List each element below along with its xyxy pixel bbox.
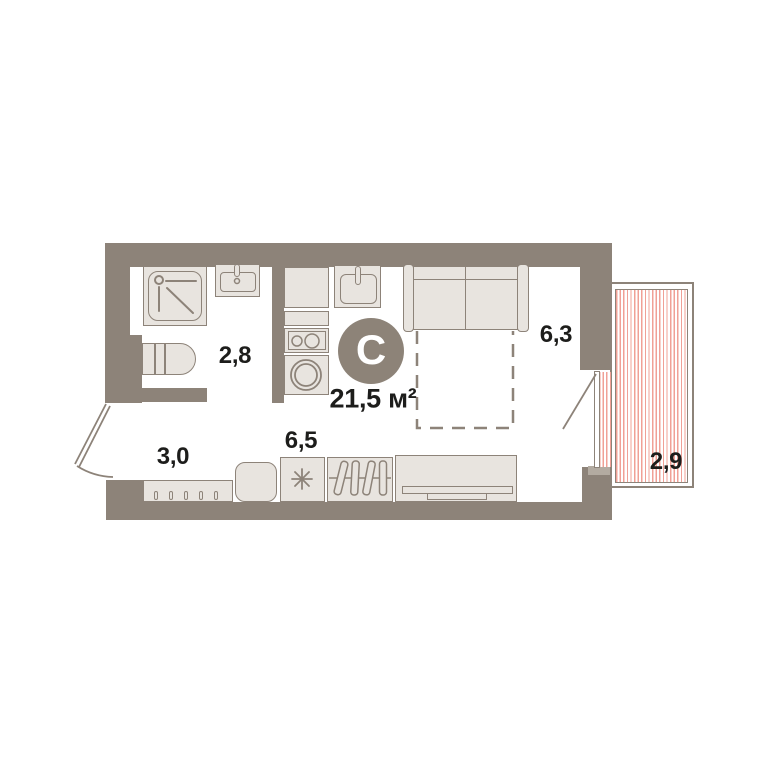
- kitchen-upper-cabinet: [284, 267, 329, 308]
- stool: [235, 462, 277, 502]
- sofa-back-right: [465, 266, 518, 280]
- kitchen-sink-faucet: [355, 266, 361, 285]
- room-label-living: 6,3: [540, 321, 572, 349]
- kitchen-counter-segment: [284, 311, 329, 326]
- toilet-tank-line-2: [164, 344, 166, 374]
- shower-basin: [148, 271, 202, 321]
- wardrobe-hook-5: [214, 491, 218, 500]
- wardrobe-hook-2: [169, 491, 173, 500]
- dish-cabinet: [327, 457, 393, 502]
- fridge: [280, 457, 325, 502]
- tv-screen: [402, 486, 513, 494]
- room-label-hallway: 3,0: [157, 443, 189, 471]
- balcony-door-swing-icon: [563, 374, 596, 429]
- sofa-armrest-right: [517, 264, 529, 332]
- room-label-kitchen: 6,5: [285, 427, 317, 455]
- wardrobe-hook-1: [154, 491, 158, 500]
- wardrobe-hook-4: [199, 491, 203, 500]
- apartment-type-letter: С: [356, 329, 386, 373]
- wall-left-upper: [105, 243, 130, 335]
- entry-door-swing-icon: [75, 404, 113, 477]
- bathroom-sink-faucet: [234, 264, 240, 277]
- sofa-back-left: [413, 266, 466, 280]
- bed-zone-dashed-outline: [417, 331, 513, 428]
- balcony-door-hatch: [599, 372, 611, 467]
- wall-right-upper: [580, 267, 612, 370]
- washing-machine: [284, 355, 329, 395]
- wall-bottom: [106, 502, 612, 520]
- wardrobe-hook-3: [184, 491, 188, 500]
- wall-bathroom-vertical: [272, 267, 284, 403]
- room-label-balcony: 2,9: [650, 448, 682, 476]
- room-label-bathroom: 2,8: [219, 342, 251, 370]
- toilet-tank-line-1: [154, 344, 156, 374]
- cooktop-panel: [288, 331, 326, 350]
- balcony-door-frame: [594, 371, 600, 468]
- sofa-armrest-left: [403, 264, 414, 332]
- floor-plan: С 21,5 м² 2,8 3,0 6,5 6,3 2,9: [0, 0, 768, 768]
- wall-left-lower: [105, 335, 142, 403]
- total-area-label: 21,5 м²: [330, 384, 417, 415]
- apartment-type-badge: С: [338, 318, 404, 384]
- sofa-seat-right: [465, 279, 518, 330]
- wall-bathroom-horizontal: [142, 388, 207, 402]
- toilet: [142, 343, 196, 375]
- sofa-seat-left: [413, 279, 466, 330]
- wall-top: [105, 243, 612, 267]
